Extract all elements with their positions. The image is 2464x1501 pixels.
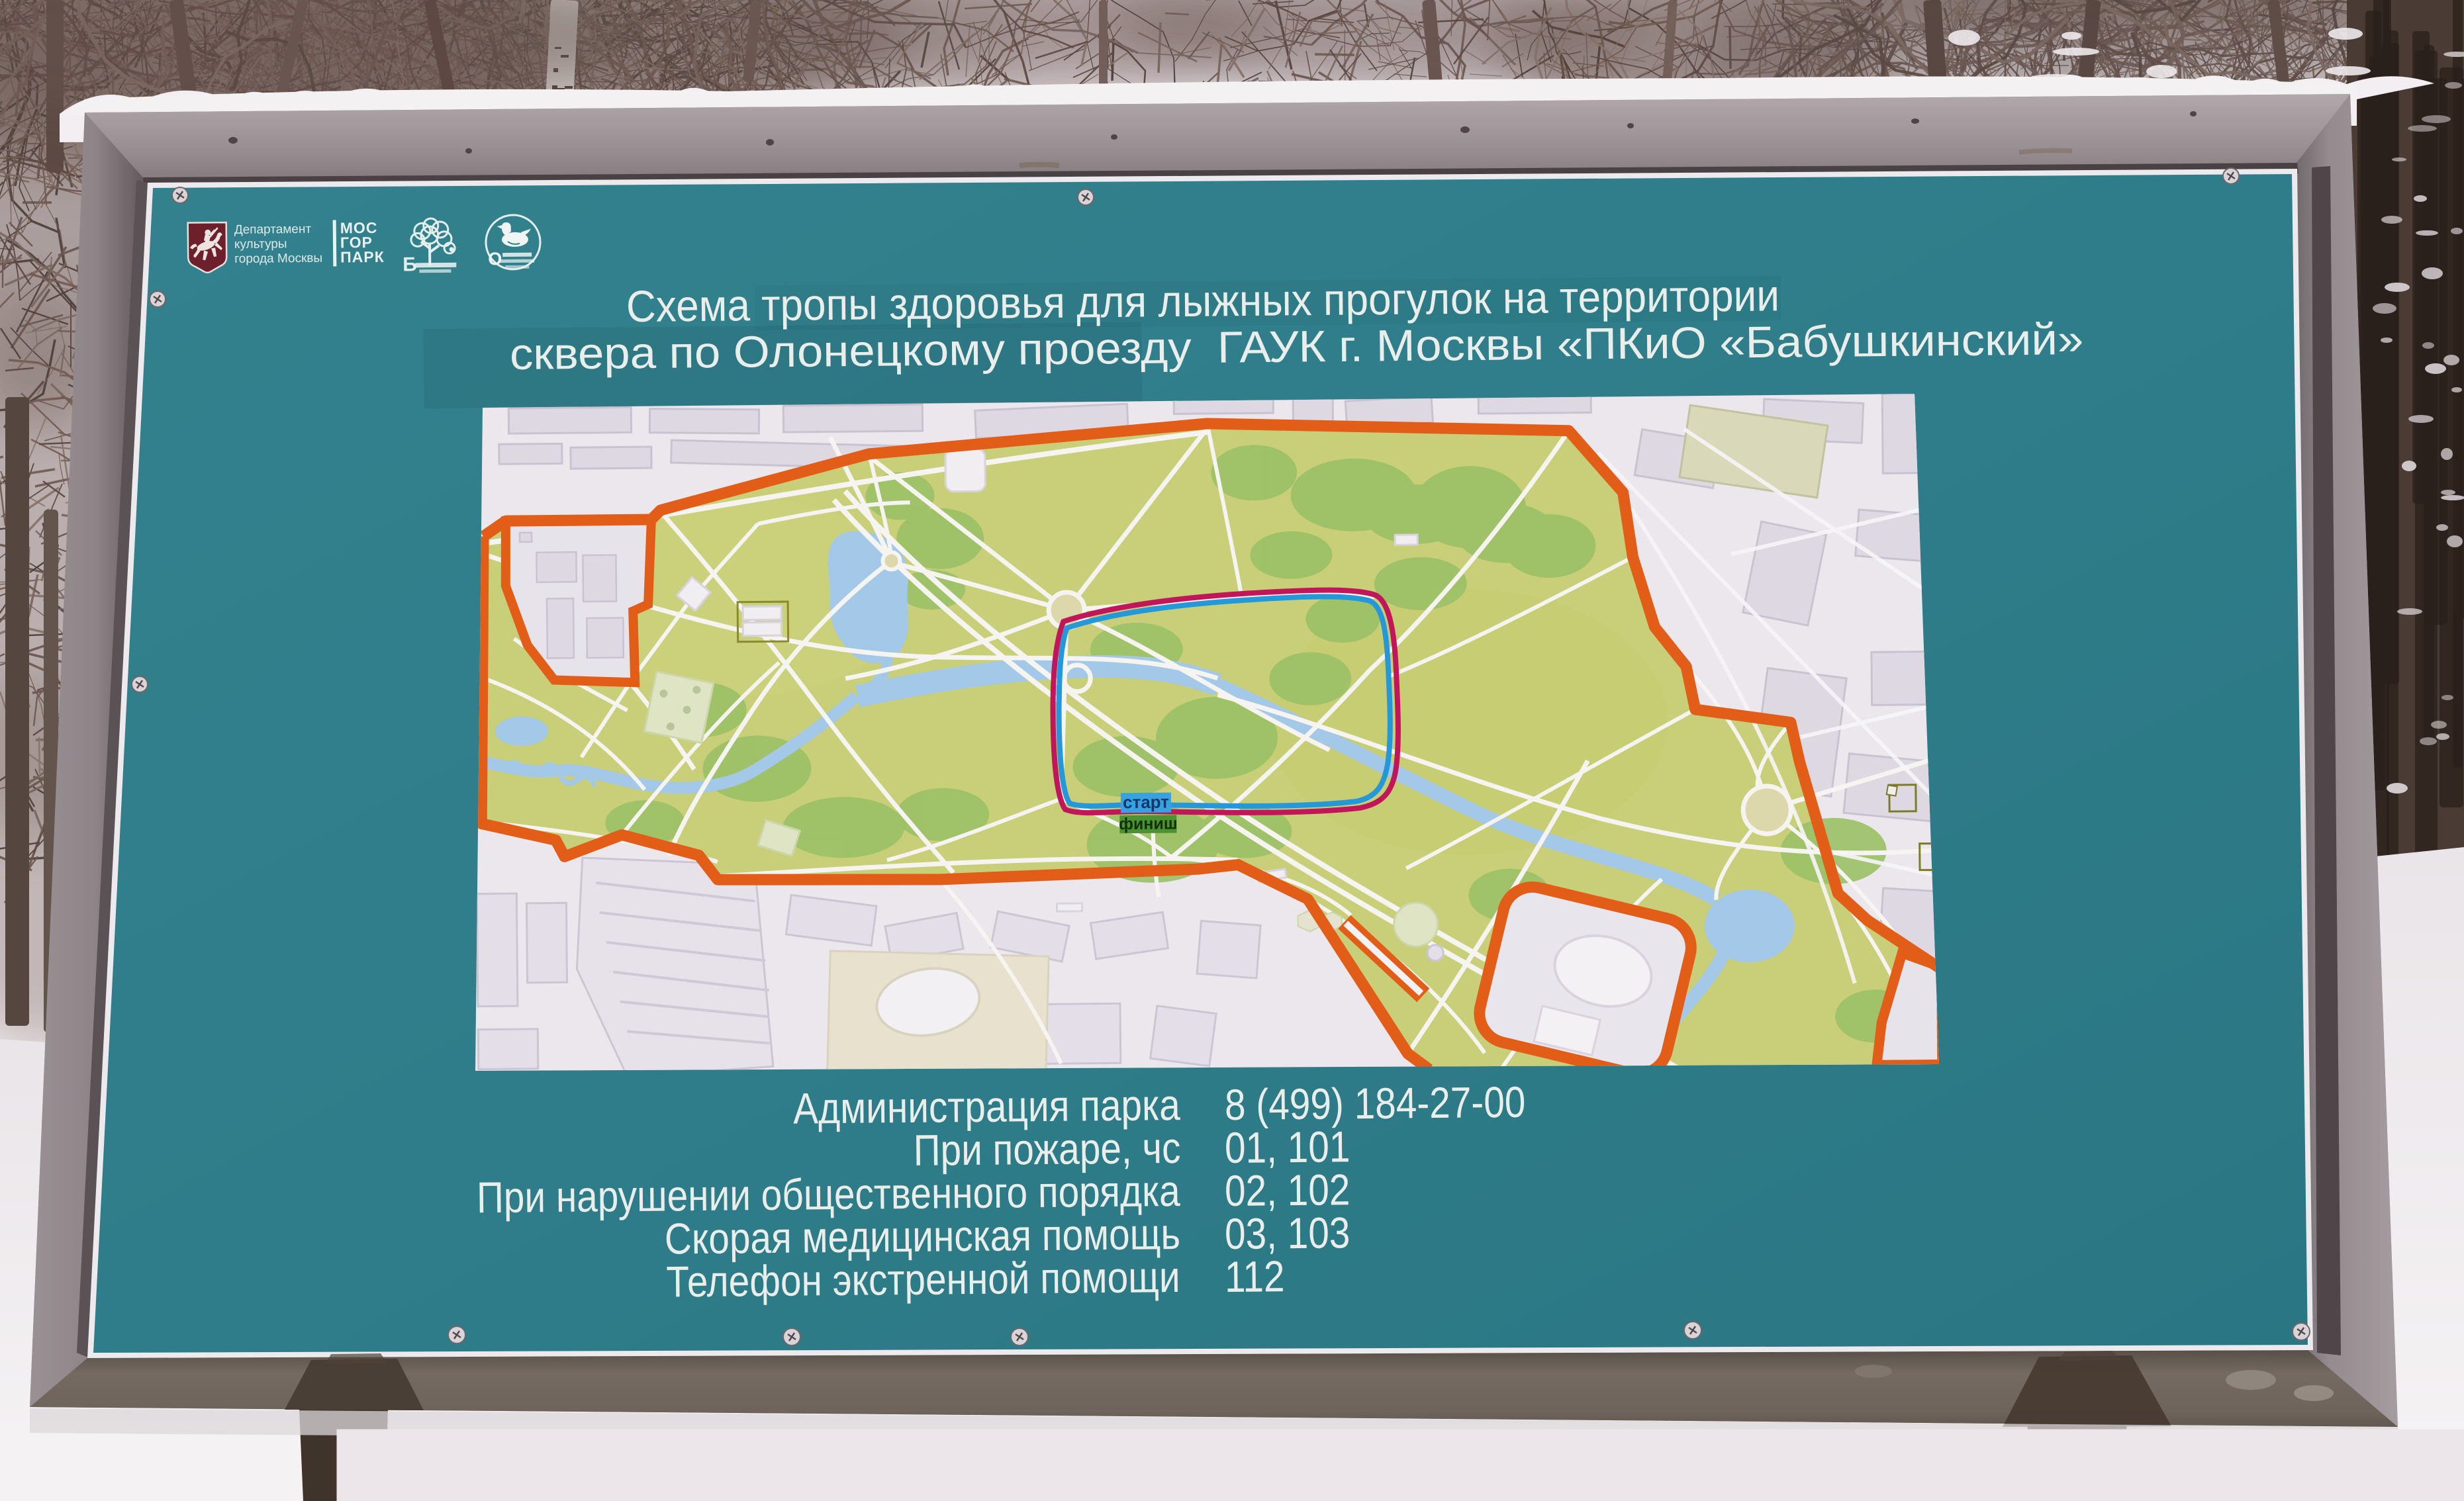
svg-text:города Москвы: города Москвы [234, 251, 322, 266]
svg-text:финиш: финиш [1119, 814, 1178, 833]
svg-text:Департамент: Департамент [234, 222, 312, 237]
svg-text:Б: Б [403, 253, 417, 275]
svg-text:старт: старт [1123, 792, 1169, 813]
svg-text:О: О [488, 249, 502, 269]
svg-text:ПАРК: ПАРК [340, 248, 385, 266]
svg-text:культуры: культуры [234, 237, 287, 251]
